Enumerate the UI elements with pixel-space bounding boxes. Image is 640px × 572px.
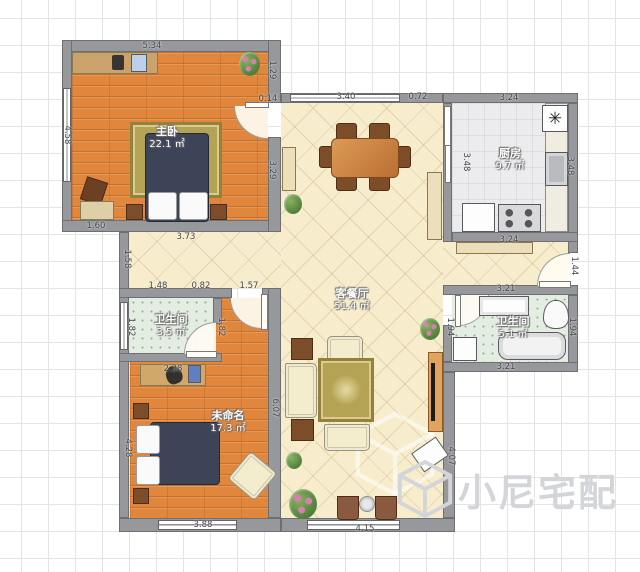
kitchen-appliance bbox=[462, 203, 495, 232]
computer bbox=[188, 365, 201, 383]
living-rug bbox=[318, 358, 374, 422]
wall bbox=[213, 298, 222, 324]
wall bbox=[62, 40, 280, 52]
window-bedroom2-bottom bbox=[158, 520, 237, 530]
nightstand bbox=[133, 488, 149, 504]
room-area: 3.5 ㎡ bbox=[136, 327, 206, 339]
wall bbox=[268, 137, 281, 232]
washing-machine bbox=[453, 337, 477, 361]
bathroom-large-door-leaf bbox=[455, 295, 461, 327]
living-cabinet bbox=[282, 147, 296, 191]
corridor-floor bbox=[129, 232, 281, 288]
wall bbox=[119, 232, 129, 518]
stove bbox=[498, 204, 541, 232]
wall bbox=[568, 295, 578, 372]
wall bbox=[443, 362, 578, 372]
room-area: 51.4 ㎡ bbox=[317, 301, 387, 313]
window-living-top bbox=[290, 94, 400, 102]
tv-screen bbox=[431, 363, 435, 421]
fridge-icon: ✳ bbox=[548, 109, 562, 129]
room-label-master: 主卧 22.1 ㎡ bbox=[130, 126, 204, 150]
nightstand bbox=[210, 204, 227, 220]
room-name: 卫生间 bbox=[478, 316, 548, 329]
wardrobe-shirt bbox=[131, 54, 147, 72]
hall-cabinet bbox=[456, 242, 533, 254]
master-door-leaf bbox=[245, 102, 269, 108]
room-label-bedroom2: 未命名 17.3 ㎡ bbox=[193, 410, 263, 434]
window-living-bottom bbox=[307, 520, 400, 530]
nightstand bbox=[133, 403, 149, 419]
nightstand bbox=[126, 204, 143, 220]
plant-icon bbox=[284, 194, 302, 214]
room-label-bathroom-large: 卫生间 5.1 ㎡ bbox=[478, 316, 548, 340]
room-area: 22.1 ㎡ bbox=[130, 139, 204, 151]
entry-door-leaf bbox=[539, 281, 571, 288]
room-label-kitchen: 厨房 9.7 ㎡ bbox=[479, 148, 541, 172]
sofa-three-seat bbox=[285, 363, 317, 418]
room-name: 未命名 bbox=[193, 410, 263, 423]
room-area: 17.3 ㎡ bbox=[193, 423, 263, 435]
side-table bbox=[291, 419, 314, 441]
fridge: ✳ bbox=[542, 105, 568, 132]
wall bbox=[452, 232, 578, 242]
kitchen-sink bbox=[545, 152, 568, 186]
pillow bbox=[136, 456, 160, 485]
floor-plan-canvas: ✳ 主卧 22.1 ㎡ 厨房 9.7 ㎡ bbox=[0, 0, 640, 572]
bench bbox=[80, 201, 114, 220]
kitchen-sliding-door bbox=[444, 106, 451, 146]
wall bbox=[119, 288, 232, 298]
lounge-chair bbox=[337, 496, 359, 520]
wall bbox=[443, 325, 452, 362]
dimension-label: 1.44 bbox=[569, 257, 579, 276]
wall bbox=[268, 40, 281, 103]
wall bbox=[443, 93, 578, 103]
cube-logo-icon bbox=[396, 458, 454, 520]
bathroom-sink bbox=[479, 296, 529, 316]
room-name: 客餐厅 bbox=[317, 288, 387, 301]
plant-icon bbox=[420, 318, 440, 340]
bathroom-small-door-leaf bbox=[186, 351, 217, 358]
plant-icon bbox=[286, 452, 302, 469]
room-area: 9.7 ㎡ bbox=[479, 161, 541, 173]
window-bathroom-small bbox=[120, 302, 128, 350]
plant-icon bbox=[289, 489, 317, 519]
room-name: 厨房 bbox=[479, 148, 541, 161]
watermark-text: 小尼宅配 bbox=[458, 462, 618, 517]
wall bbox=[568, 103, 578, 253]
room-name: 卫生间 bbox=[136, 314, 206, 327]
room-label-living: 客餐厅 51.4 ㎡ bbox=[317, 288, 387, 312]
lounge-chair bbox=[375, 496, 397, 520]
pillow bbox=[179, 192, 208, 220]
room-area: 5.1 ㎡ bbox=[478, 329, 548, 341]
room-label-bathroom-small: 卫生间 3.5 ㎡ bbox=[136, 314, 206, 338]
round-table bbox=[359, 496, 375, 512]
watermark: 小尼宅配 bbox=[396, 458, 618, 520]
room-name: 主卧 bbox=[130, 126, 204, 139]
plant-icon bbox=[239, 52, 260, 76]
sofa-two-seat bbox=[324, 424, 370, 451]
bedroom2-door-leaf bbox=[261, 294, 268, 330]
pillow bbox=[136, 425, 160, 454]
dining-table bbox=[331, 138, 399, 178]
side-table bbox=[291, 338, 313, 360]
kitchen-sliding-door bbox=[445, 145, 451, 183]
pillow bbox=[148, 192, 177, 220]
tall-cabinet bbox=[427, 172, 442, 240]
wardrobe-clothes bbox=[112, 55, 124, 70]
window-master-left bbox=[63, 88, 71, 182]
wall bbox=[268, 288, 281, 518]
